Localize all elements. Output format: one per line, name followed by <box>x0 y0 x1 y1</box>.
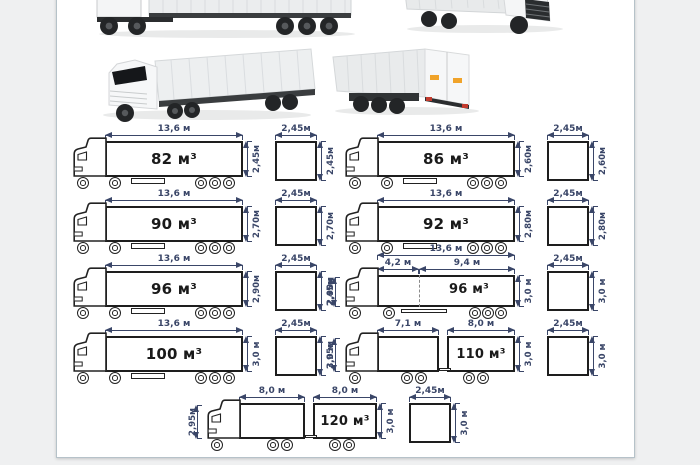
dimension-label: 2,45м <box>281 254 311 264</box>
truck-cab-icon <box>73 332 107 372</box>
dimension-label: 2,45м <box>415 386 445 396</box>
door-marker-right <box>453 78 462 83</box>
dimension-label: 13,6 м <box>158 319 191 329</box>
cab-height-dimension: 2,95м <box>197 405 202 439</box>
cross-section-square <box>275 336 317 376</box>
dimension-label: 9,4 м <box>454 258 480 268</box>
fuel-tank <box>403 178 437 184</box>
truck-cab-icon <box>345 332 379 372</box>
fuel-tank <box>131 243 165 249</box>
length-dimension: 13,6 м <box>105 265 243 270</box>
dimension-label: 13,6 м <box>430 244 463 254</box>
wheel <box>195 372 207 384</box>
truck-box <box>239 403 305 439</box>
photo-box-truck-rear-quarter <box>329 47 483 117</box>
truck-diagram: 13,6 м 100 м³ 3,0 м <box>73 318 273 384</box>
wheels <box>353 96 405 114</box>
wheel <box>281 439 293 451</box>
dimension-label: 2,80м <box>598 212 608 240</box>
dimension-label: 13,6 м <box>430 124 463 134</box>
cross-section-square <box>275 206 317 246</box>
semi-truck-front-quarter-illustration <box>95 45 319 123</box>
dimension-label: 3,0 м <box>460 411 470 436</box>
dimension-label: 2,60м <box>524 145 534 173</box>
truck-cab-icon <box>207 399 241 439</box>
width-dimension: 2,45м <box>275 135 317 140</box>
diagram-row: 13,6 м 96 м³ 2,90м 2,45м 2,90м <box>57 253 636 319</box>
diagram-96-semi: 13,6 м 96 м³ 2,90м 2,45м 2,90м <box>63 253 335 319</box>
wheel <box>343 439 355 451</box>
height-dimension: 2,45м <box>247 141 252 177</box>
road-train-diagram: 7,1 м 8,0 м 110 м³ 2,95м 3,0 м <box>345 318 545 384</box>
cross-section: 2,45м 2,80м <box>547 188 607 254</box>
trailer-box: 86 м³ <box>377 141 515 177</box>
volume-label: 96 м³ <box>425 282 513 297</box>
dimension-label: 2,45м <box>281 124 311 134</box>
photo-semi-side-view <box>87 0 359 41</box>
wheel <box>223 372 235 384</box>
dimension-label: 7,1 м <box>395 319 421 329</box>
road-train-diagram: 13,6 м 4,2 м 9,4 м 96 м³ 2,45м 3,0 м <box>345 253 545 319</box>
length-dimension: 13,6 м <box>105 200 243 205</box>
height-dimension: 3,0 м <box>593 271 598 311</box>
volume-label: 90 м³ <box>151 215 197 233</box>
trailer-box: 100 м³ <box>105 336 243 372</box>
trailer-box: 92 м³ <box>377 206 515 242</box>
volume-label: 120 м³ <box>320 414 369 429</box>
dimension-label: 3,0 м <box>252 342 262 367</box>
dimension-label: 2,45м <box>326 278 336 306</box>
wheel <box>109 372 121 384</box>
drawbar <box>439 368 451 371</box>
trailer-box: 82 м³ <box>105 141 243 177</box>
fuel-tank <box>131 373 165 379</box>
width-dimension: 2,45м <box>275 200 317 205</box>
dimension-label: 13,6 м <box>158 124 191 134</box>
height-dimension: 3,0 м <box>381 403 386 439</box>
trailer-box: 90 м³ <box>105 206 243 242</box>
road-train-diagram: 8,0 м 8,0 м 120 м³ 2,95м 3,0 м <box>207 385 407 451</box>
dimension-label: 2,45м <box>281 189 311 199</box>
height-dimension: 3,0 м <box>247 336 252 372</box>
cross-section-square <box>275 141 317 181</box>
wheel <box>401 372 413 384</box>
diagram-row: 13,6 м 82 м³ 2,45м 2,45м 2,45м <box>57 123 636 189</box>
dimension-label: 2,45м <box>281 319 311 329</box>
door-marker-left <box>430 75 439 80</box>
truck-cab-icon <box>73 202 107 242</box>
rear-length-dimension: 8,0 м <box>447 330 515 335</box>
cross-section: 2,45м 2,70м <box>275 188 335 254</box>
height-dimension: 2,80м <box>593 206 598 246</box>
volume-label: 100 м³ <box>146 345 203 363</box>
photo-semi-front-quarter-cropped <box>403 0 567 35</box>
dimension-label: 2,45м <box>252 145 262 173</box>
cross-section-square <box>409 403 451 443</box>
dimension-label: 8,0 м <box>332 386 358 396</box>
cab-height-dimension: 2,95м <box>335 338 340 372</box>
width-dimension: 2,45м <box>547 265 589 270</box>
truck-diagram: 13,6 м 82 м³ 2,45м <box>73 123 273 189</box>
taillight-left <box>426 97 432 101</box>
box-truck-rear-quarter-illustration <box>329 47 483 117</box>
dimension-label: 2,80м <box>524 210 534 238</box>
wheel <box>477 372 489 384</box>
dimension-label: 13,6 м <box>158 254 191 264</box>
cross-section-square <box>275 271 317 311</box>
dimension-label: 13,6 м <box>430 189 463 199</box>
rear-length-dimension: 8,0 м <box>313 397 377 402</box>
width-dimension: 2,45м <box>547 200 589 205</box>
trailer-box: 120 м³ <box>313 403 377 439</box>
cross-section: 2,45м 3,0 м <box>547 318 607 384</box>
dimension-label: 2,90м <box>252 275 262 303</box>
diagram-92: 13,6 м 92 м³ 2,80м 2,45м 2,80м <box>335 188 607 254</box>
cross-section: 2,45м 3,0 м <box>547 253 607 319</box>
diagram-86: 13,6 м 86 м³ 2,60м 2,45м 2,60м <box>335 123 607 189</box>
photo-semi-front-quarter <box>95 45 319 123</box>
trailer-body <box>403 0 506 13</box>
front-length-dimension: 8,0 м <box>239 397 305 402</box>
length-dimension: 13,6 м <box>105 330 243 335</box>
shadow <box>103 110 311 120</box>
length-dimension: 13,6 м <box>105 135 243 140</box>
width-dimension: 2,45м <box>275 265 317 270</box>
box-divider <box>419 275 420 307</box>
cross-section-square <box>547 336 589 376</box>
truck-cab-icon <box>73 267 107 307</box>
diagram-row: 13,6 м 100 м³ 3,0 м 2,45м 3,0 м <box>57 318 636 384</box>
diagram-120: 8,0 м 8,0 м 120 м³ 2,95м 3,0 м 2,45м <box>197 385 469 451</box>
dimension-label: 3,0 м <box>598 344 608 369</box>
trailer-box: 96 м³ <box>105 271 243 307</box>
dimension-label: 3,0 м <box>598 279 608 304</box>
dimension-label: 2,95м <box>326 341 336 369</box>
volume-label: 110 м³ <box>456 347 505 362</box>
trailer-box: 110 м³ <box>447 336 515 372</box>
trailer-rail <box>149 13 351 18</box>
height-dimension: 2,80м <box>519 206 524 242</box>
diagram-82: 13,6 м 82 м³ 2,45м 2,45м 2,45м <box>63 123 335 189</box>
volume-label: 82 м³ <box>151 150 197 168</box>
cross-section: 2,45м 2,60м <box>547 123 607 189</box>
truck-box <box>377 336 439 372</box>
drawbar <box>305 435 317 438</box>
dimension-label: 3,0 м <box>524 279 534 304</box>
wheel <box>211 439 223 451</box>
height-dimension: 3,0 м <box>455 403 460 443</box>
height-dimension: 3,0 м <box>519 336 524 372</box>
diagram-110: 7,1 м 8,0 м 110 м³ 2,95м 3,0 м 2,45м <box>335 318 607 384</box>
height-dimension: 3,0 м <box>593 336 598 376</box>
truck-cab-icon <box>345 267 379 307</box>
dimension-label: 2,45м <box>553 254 583 264</box>
wheel <box>415 372 427 384</box>
dimension-label: 2,45м <box>553 124 583 134</box>
truck-diagram: 13,6 м 96 м³ 2,90м <box>73 253 273 319</box>
diagram-row: 13,6 м 90 м³ 2,70м 2,45м 2,70м <box>57 188 636 254</box>
diagram-100: 13,6 м 100 м³ 3,0 м 2,45м 3,0 м <box>63 318 335 384</box>
rear-length-dimension: 9,4 м <box>419 269 515 274</box>
dimension-label: 2,45м <box>553 319 583 329</box>
semi-truck-front-quarter-illustration <box>403 0 567 35</box>
width-dimension: 2,45м <box>547 330 589 335</box>
width-dimension: 2,45м <box>275 330 317 335</box>
page: 13,6 м 82 м³ 2,45м 2,45м 2,45м <box>0 0 700 465</box>
width-dimension: 2,45м <box>409 397 451 402</box>
width-dimension: 2,45м <box>547 135 589 140</box>
dimension-label: 8,0 м <box>259 386 285 396</box>
wheel <box>463 372 475 384</box>
dimension-label: 3,0 м <box>386 409 396 434</box>
dimension-label: 2,60м <box>598 147 608 175</box>
front-length-dimension: 7,1 м <box>377 330 439 335</box>
cab-height-dimension: 2,45м <box>335 277 340 307</box>
wheel <box>77 372 89 384</box>
volume-label: 92 м³ <box>423 215 469 233</box>
truck-diagram: 13,6 м 86 м³ 2,60м <box>345 123 545 189</box>
truck-diagram: 13,6 м 90 м³ 2,70м <box>73 188 273 254</box>
fuel-tank <box>131 178 165 184</box>
height-dimension: 2,90м <box>247 271 252 307</box>
cross-section-square <box>547 141 589 181</box>
height-dimension: 3,0 м <box>519 275 524 307</box>
diagram-96-roadtrain: 13,6 м 4,2 м 9,4 м 96 м³ 2,45м 3,0 м <box>335 253 607 319</box>
wheel <box>267 439 279 451</box>
diagram-row: 8,0 м 8,0 м 120 м³ 2,95м 3,0 м 2,45м <box>57 385 636 451</box>
dimension-label: 13,6 м <box>158 189 191 199</box>
wheel <box>209 372 221 384</box>
dimension-label: 2,45м <box>553 189 583 199</box>
wheel <box>349 372 361 384</box>
front-length-dimension: 4,2 м <box>377 269 419 274</box>
cross-section-square <box>547 271 589 311</box>
cross-section-square <box>547 206 589 246</box>
cross-section: 2,45м 3,0 м <box>409 385 469 451</box>
wheel <box>329 439 341 451</box>
truck-cab-icon <box>345 137 379 177</box>
cab <box>97 0 141 17</box>
dimension-label: 3,0 м <box>524 342 534 367</box>
cross-section: 2,45м 2,45м <box>275 123 335 189</box>
dimension-label: 8,0 м <box>468 319 494 329</box>
diagram-90: 13,6 м 90 м³ 2,70м 2,45м 2,70м <box>63 188 335 254</box>
truck-cab-icon <box>345 202 379 242</box>
trailer-frame <box>401 309 447 313</box>
content-panel: 13,6 м 82 м³ 2,45м 2,45м 2,45м <box>56 0 635 458</box>
trailer-body <box>149 0 351 15</box>
height-dimension: 2,60м <box>593 141 598 181</box>
height-dimension: 2,60м <box>519 141 524 177</box>
dimension-label: 4,2 м <box>385 258 411 268</box>
volume-label: 86 м³ <box>423 150 469 168</box>
taillight-right <box>462 104 468 108</box>
length-dimension: 13,6 м <box>377 135 515 140</box>
truck-cab-icon <box>73 137 107 177</box>
dimension-label: 2,70м <box>252 210 262 238</box>
height-dimension: 2,45м <box>321 141 326 181</box>
height-dimension: 2,70м <box>321 206 326 246</box>
length-dimension: 13,6 м <box>377 200 515 205</box>
semi-truck-side-illustration <box>87 0 359 41</box>
height-dimension: 2,70м <box>247 206 252 242</box>
dimension-label: 2,95м <box>188 408 198 436</box>
volume-label: 96 м³ <box>151 280 197 298</box>
fuel-tank <box>131 308 165 314</box>
